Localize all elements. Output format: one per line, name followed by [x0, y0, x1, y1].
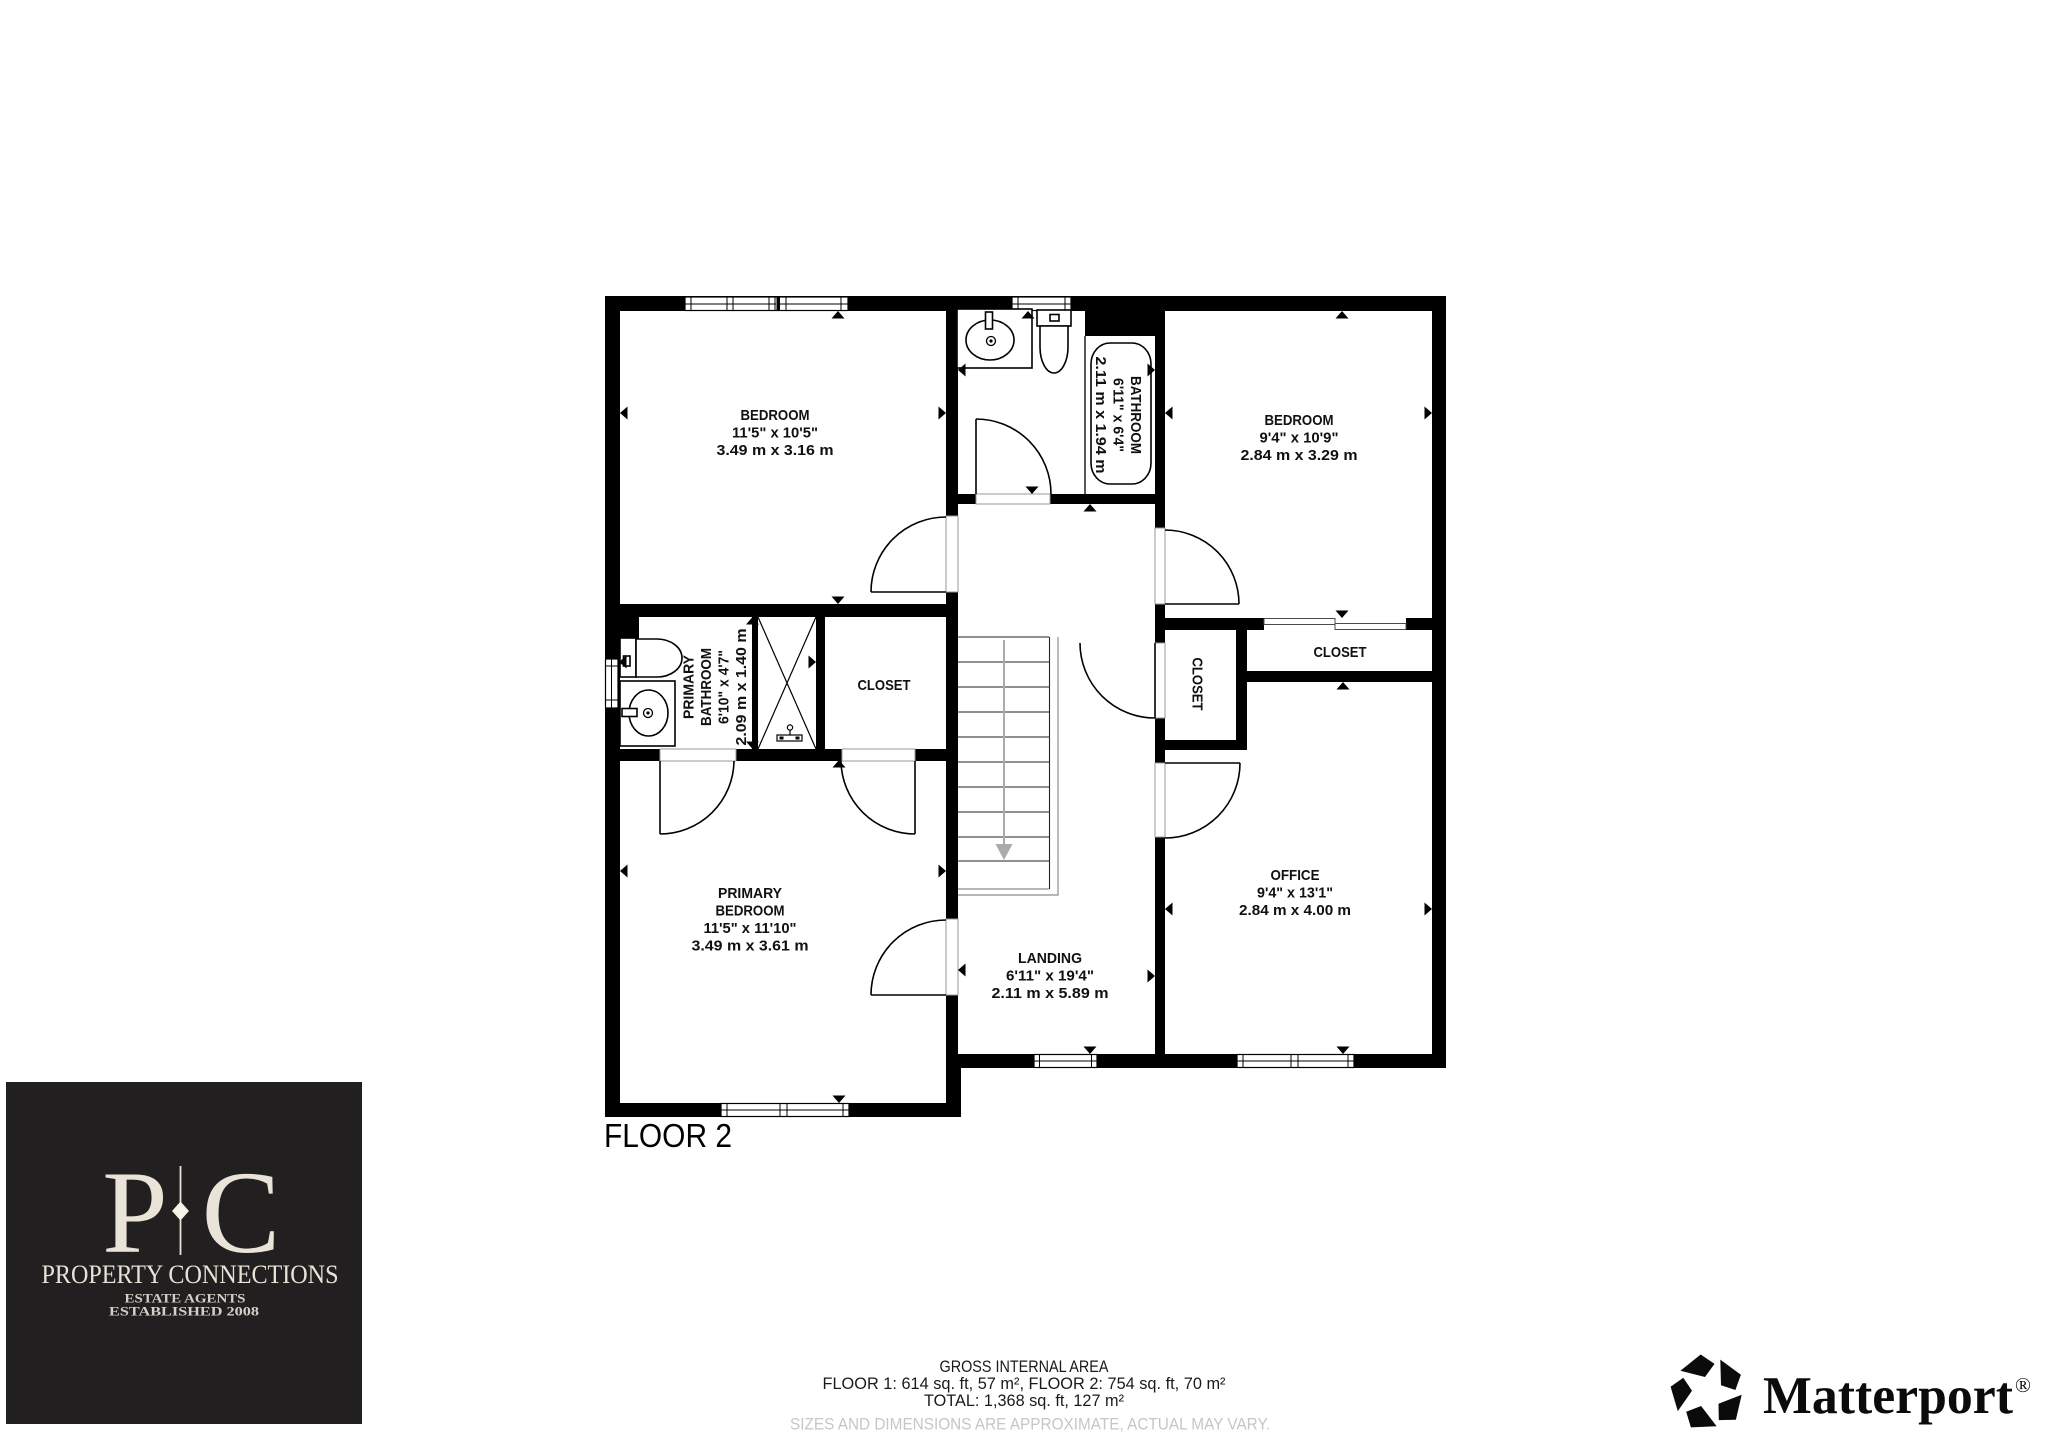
svg-text:BATHROOM: BATHROOM — [698, 648, 715, 726]
svg-text:2.84 m x 3.29 m: 2.84 m x 3.29 m — [1241, 447, 1358, 464]
svg-text:6'11" x 6'4": 6'11" x 6'4" — [1110, 378, 1127, 452]
svg-text:PRIMARY: PRIMARY — [681, 655, 698, 719]
svg-text:ESTABLISHED 2008: ESTABLISHED 2008 — [109, 1304, 260, 1319]
svg-text:BEDROOM: BEDROOM — [741, 407, 810, 424]
svg-text:FLOOR 2: FLOOR 2 — [604, 1117, 732, 1154]
svg-text:PRIMARY: PRIMARY — [718, 885, 782, 902]
svg-text:9'4" x 10'9": 9'4" x 10'9" — [1260, 430, 1339, 447]
svg-text:Matterport: Matterport — [1763, 1367, 2013, 1425]
svg-text:3.49 m x 3.16 m: 3.49 m x 3.16 m — [717, 442, 834, 459]
svg-text:2.84 m x 4.00 m: 2.84 m x 4.00 m — [1239, 902, 1351, 919]
svg-text:2.11 m x 5.89 m: 2.11 m x 5.89 m — [992, 985, 1109, 1002]
svg-text:P: P — [102, 1147, 168, 1278]
svg-text:2.09 m x 1.40 m: 2.09 m x 1.40 m — [733, 629, 750, 746]
svg-text:CLOSET: CLOSET — [858, 677, 911, 694]
svg-text:2.11 m x 1.94 m: 2.11 m x 1.94 m — [1092, 357, 1109, 474]
svg-text:3.49 m x 3.61 m: 3.49 m x 3.61 m — [692, 938, 809, 955]
svg-text:CLOSET: CLOSET — [1189, 658, 1206, 711]
svg-text:OFFICE: OFFICE — [1271, 867, 1320, 884]
svg-text:9'4" x 13'1": 9'4" x 13'1" — [1257, 885, 1333, 902]
svg-text:11'5" x 10'5": 11'5" x 10'5" — [732, 425, 818, 442]
svg-text:LANDING: LANDING — [1018, 950, 1082, 967]
svg-text:C: C — [202, 1147, 281, 1278]
svg-text:CLOSET: CLOSET — [1314, 644, 1367, 661]
svg-text:6'10" x 4'7": 6'10" x 4'7" — [716, 650, 733, 724]
svg-text:SIZES AND DIMENSIONS ARE APPRO: SIZES AND DIMENSIONS ARE APPROXIMATE, AC… — [790, 1415, 1270, 1434]
svg-text:TOTAL: 1,368 sq. ft, 127 m²: TOTAL: 1,368 sq. ft, 127 m² — [924, 1391, 1124, 1410]
svg-text:BEDROOM: BEDROOM — [1265, 412, 1334, 429]
svg-text:PROPERTY CONNECTIONS: PROPERTY CONNECTIONS — [42, 1260, 339, 1289]
svg-text:BEDROOM: BEDROOM — [716, 903, 785, 920]
svg-text:BATHROOM: BATHROOM — [1127, 376, 1144, 454]
svg-text:11'5" x 11'10": 11'5" x 11'10" — [704, 920, 797, 937]
svg-text:6'11" x 19'4": 6'11" x 19'4" — [1006, 968, 1094, 985]
svg-text:®: ® — [2015, 1373, 2031, 1397]
